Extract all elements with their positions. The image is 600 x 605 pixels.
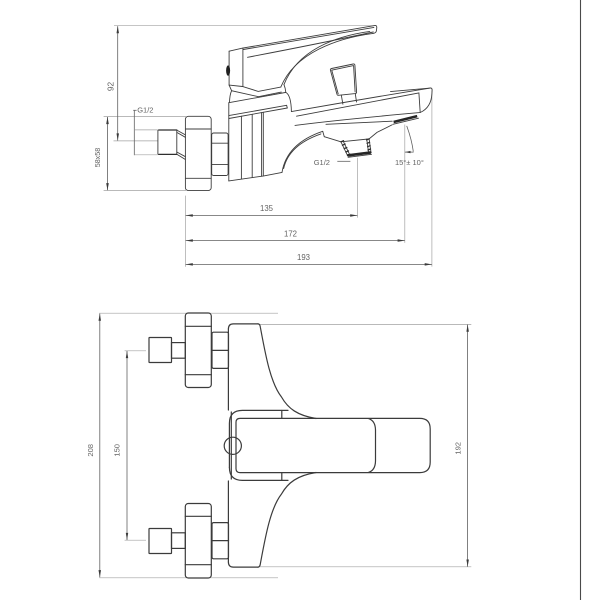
svg-text:135: 135: [260, 204, 274, 213]
svg-text:58x58: 58x58: [93, 148, 102, 168]
svg-text:208: 208: [86, 444, 95, 457]
svg-text:192: 192: [454, 442, 463, 455]
svg-text:150: 150: [113, 444, 122, 457]
svg-text:172: 172: [284, 229, 297, 238]
svg-text:92: 92: [106, 82, 116, 92]
svg-text:G1/2: G1/2: [314, 158, 330, 167]
svg-text:G1/2: G1/2: [137, 106, 153, 115]
svg-text:15°± 10°: 15°± 10°: [395, 158, 424, 167]
svg-text:193: 193: [297, 253, 310, 262]
